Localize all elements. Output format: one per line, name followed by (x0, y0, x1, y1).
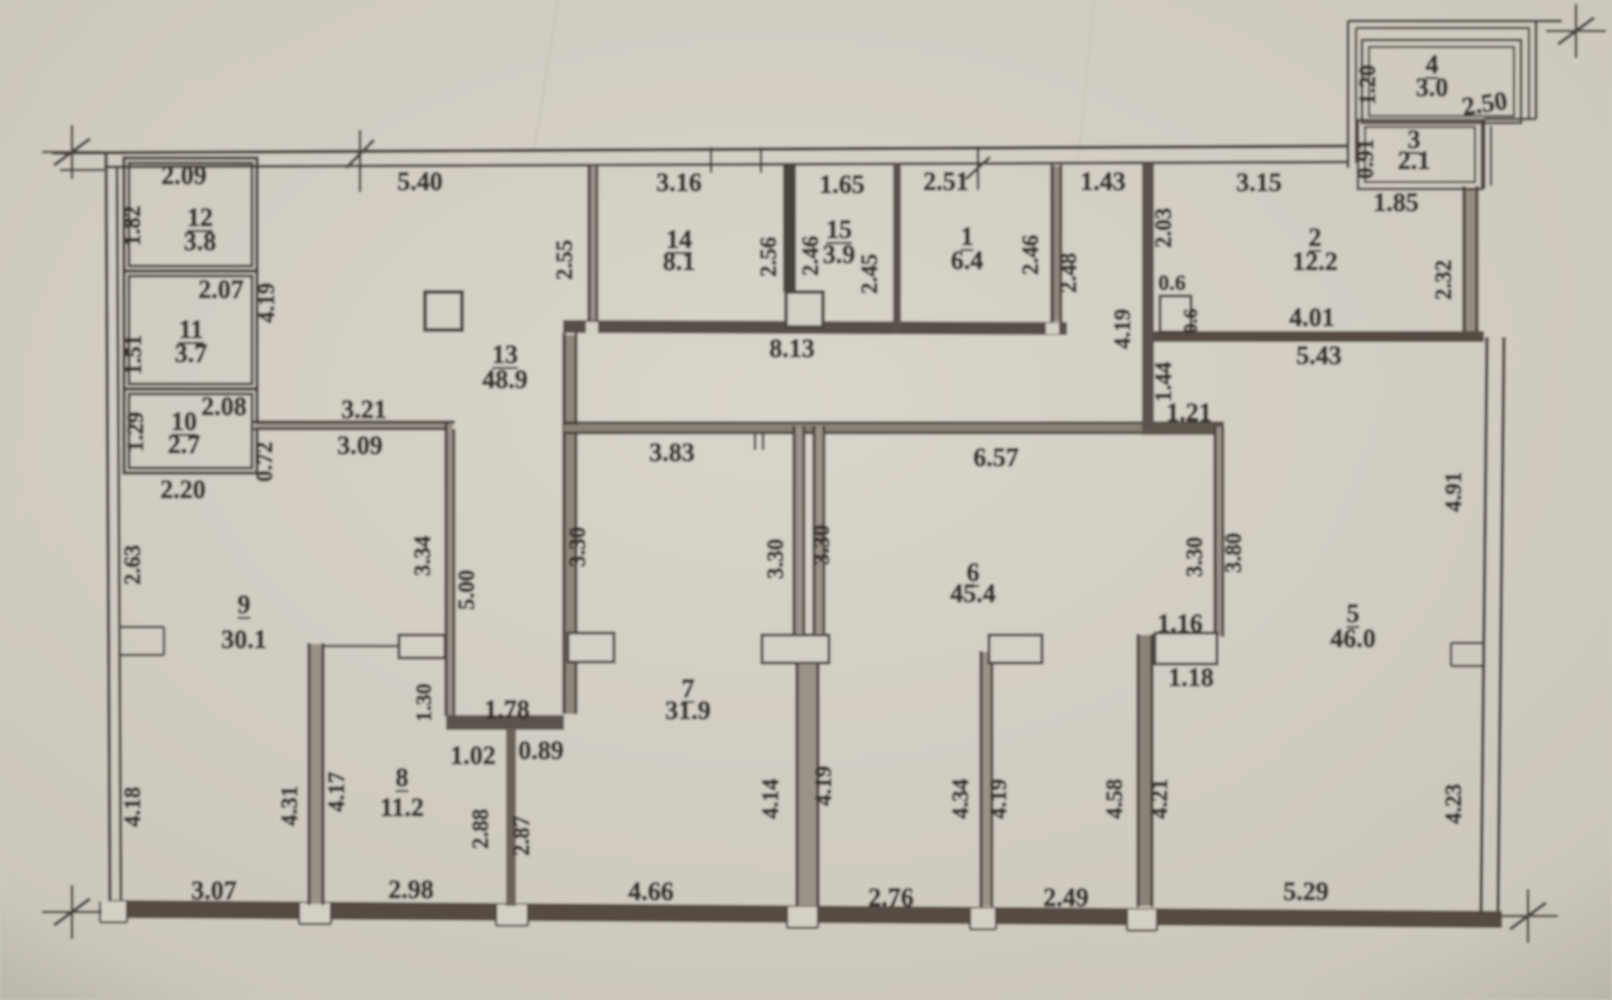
svg-text:2.63: 2.63 (120, 545, 145, 585)
svg-text:9: 9 (238, 590, 251, 619)
svg-text:4.01: 4.01 (1289, 303, 1335, 332)
svg-text:4.19: 4.19 (1110, 309, 1135, 349)
svg-text:3.09: 3.09 (337, 431, 383, 460)
svg-text:2.46: 2.46 (798, 236, 823, 276)
svg-text:4.91: 4.91 (1441, 472, 1466, 512)
svg-text:3.30: 3.30 (809, 525, 834, 565)
svg-text:31.9: 31.9 (665, 696, 711, 725)
svg-text:6.4: 6.4 (951, 246, 984, 275)
svg-text:2.49: 2.49 (1043, 883, 1089, 912)
svg-text:3.7: 3.7 (175, 339, 208, 368)
svg-text:2.76: 2.76 (868, 883, 914, 912)
svg-text:4.31: 4.31 (277, 786, 302, 826)
svg-text:11.2: 11.2 (380, 793, 424, 822)
svg-text:1.51: 1.51 (121, 335, 146, 375)
svg-text:1.78: 1.78 (484, 695, 530, 724)
svg-text:8.1: 8.1 (663, 247, 696, 276)
svg-text:46.0: 46.0 (1330, 624, 1376, 653)
svg-text:3.0: 3.0 (1416, 73, 1449, 102)
svg-text:5.40: 5.40 (397, 167, 443, 196)
svg-text:0.91: 0.91 (1353, 139, 1378, 179)
svg-text:1.85: 1.85 (1373, 188, 1419, 217)
svg-text:3.30: 3.30 (1182, 537, 1207, 577)
svg-text:1.29: 1.29 (123, 412, 148, 452)
svg-text:2.07: 2.07 (198, 275, 244, 304)
svg-text:1.02: 1.02 (450, 741, 496, 770)
svg-text:3.15: 3.15 (1236, 168, 1282, 197)
svg-text:2.08: 2.08 (201, 392, 247, 421)
svg-text:2.46: 2.46 (1018, 235, 1043, 275)
svg-text:0.6: 0.6 (1180, 309, 1202, 334)
svg-text:48.9: 48.9 (482, 365, 528, 394)
svg-text:2.55: 2.55 (552, 240, 577, 280)
svg-text:2.56: 2.56 (756, 237, 781, 277)
svg-text:2.45: 2.45 (857, 254, 882, 294)
svg-text:4.18: 4.18 (120, 787, 145, 827)
svg-text:3.16: 3.16 (656, 168, 702, 197)
svg-text:4.34: 4.34 (948, 778, 973, 819)
svg-text:0.6: 0.6 (1158, 270, 1186, 295)
svg-text:3.34: 3.34 (410, 535, 435, 576)
svg-text:2.09: 2.09 (161, 161, 207, 190)
svg-text:5.00: 5.00 (454, 570, 479, 610)
svg-text:0.72: 0.72 (252, 442, 277, 482)
svg-text:2.32: 2.32 (1431, 260, 1456, 300)
svg-text:5.43: 5.43 (1296, 341, 1342, 370)
svg-text:4.19: 4.19 (986, 779, 1011, 819)
svg-text:2.7: 2.7 (168, 430, 201, 459)
svg-text:6.57: 6.57 (973, 443, 1019, 472)
svg-text:4.23: 4.23 (1441, 784, 1466, 824)
svg-text:2.88: 2.88 (468, 809, 493, 849)
svg-text:3.07: 3.07 (191, 876, 237, 905)
svg-text:8: 8 (396, 763, 409, 792)
svg-text:1.82: 1.82 (120, 206, 145, 246)
svg-text:0.89: 0.89 (518, 736, 564, 765)
svg-text:1.65: 1.65 (819, 170, 865, 199)
svg-text:4.17: 4.17 (324, 772, 349, 812)
svg-text:5.29: 5.29 (1283, 877, 1329, 906)
svg-text:2.51: 2.51 (923, 167, 969, 196)
svg-text:1.44: 1.44 (1151, 361, 1176, 402)
svg-text:1.18: 1.18 (1168, 663, 1214, 692)
svg-text:2.03: 2.03 (1151, 208, 1176, 248)
svg-text:3.8: 3.8 (184, 227, 217, 256)
svg-text:1.43: 1.43 (1080, 167, 1126, 196)
svg-text:2.87: 2.87 (509, 816, 534, 856)
svg-text:30.1: 30.1 (221, 625, 267, 654)
svg-text:3.21: 3.21 (341, 395, 387, 424)
svg-text:12.2: 12.2 (1292, 247, 1338, 276)
svg-text:8.13: 8.13 (769, 334, 815, 363)
svg-text:4.21: 4.21 (1147, 779, 1172, 819)
svg-text:3.30: 3.30 (763, 539, 788, 579)
svg-text:2.20: 2.20 (160, 475, 206, 504)
svg-text:4.19: 4.19 (254, 283, 279, 323)
svg-text:3.83: 3.83 (649, 438, 695, 467)
svg-text:2.98: 2.98 (388, 875, 434, 904)
svg-text:45.4: 45.4 (950, 579, 996, 608)
svg-text:4.58: 4.58 (1102, 779, 1127, 819)
svg-text:3.80: 3.80 (1221, 533, 1246, 573)
svg-text:1.30: 1.30 (411, 683, 436, 722)
svg-text:3.9: 3.9 (823, 240, 856, 269)
svg-text:4.14: 4.14 (758, 778, 783, 819)
svg-text:2.1: 2.1 (1398, 146, 1431, 175)
svg-text:1.16: 1.16 (1157, 609, 1203, 638)
svg-text:4.66: 4.66 (628, 877, 674, 906)
svg-text:2.48: 2.48 (1056, 253, 1081, 293)
svg-text:3.30: 3.30 (565, 527, 590, 567)
svg-text:1.20: 1.20 (1355, 65, 1380, 105)
svg-text:4.19: 4.19 (811, 766, 836, 806)
